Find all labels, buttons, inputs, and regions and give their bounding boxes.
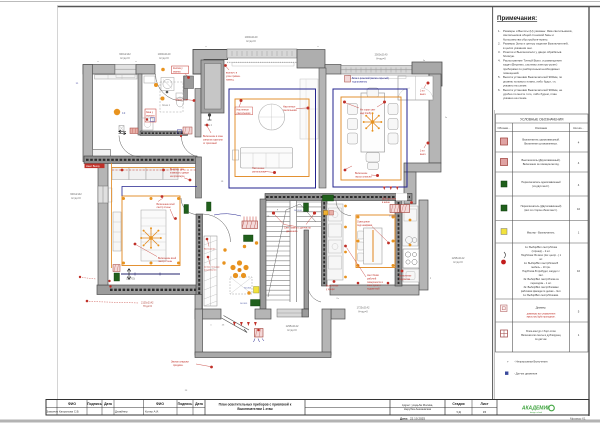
svg-text:Лист: Лист (480, 402, 488, 406)
svg-text:1.: 1. (498, 29, 501, 33)
svg-text:Выключатель (Двухклавишный).: Выключатель (Двухклавишный). (522, 158, 561, 162)
svg-text:Зона 1: Зона 1 (162, 103, 171, 107)
svg-text:1з: 1з (445, 117, 447, 119)
svg-text:Подпись: Подпись (178, 402, 193, 406)
svg-text:№1305: №1305 (240, 302, 248, 305)
svg-text:1295х2142: 1295х2142 (452, 256, 465, 260)
svg-text:под кроватью: под кроватью (352, 80, 367, 83)
svg-text:Мрамор К1: Мрамор К1 (570, 417, 586, 421)
svg-text:Мастер - Выключатель.: Мастер - Выключатель. (527, 231, 556, 235)
svg-text:Капралова С.В.: Капралова С.В. (59, 410, 79, 414)
svg-text:Дата: Дата (195, 402, 203, 406)
svg-text:рабочими фасада по делам – 3шт: рабочими фасада по делам – 3шт. (521, 290, 562, 293)
svg-text:(из двух мест).: (из двух мест). (532, 184, 550, 188)
svg-text:Накл Внизу: Накл Внизу (86, 164, 100, 168)
svg-text:подсветкой: подсветкой (367, 288, 380, 291)
svg-text:придомн.: придомн. (173, 364, 184, 367)
svg-text:движению: движению (286, 230, 298, 233)
svg-text:шт.: шт. (539, 258, 543, 261)
svg-text:от прихожей: от прихожей (203, 142, 217, 145)
svg-text:У.Д: У.Д (456, 410, 460, 414)
svg-text:люстр стены: люстр стены (158, 260, 172, 263)
svg-text:Н=до=0: Н=до=0 (376, 57, 386, 61)
svg-text:Переключатель одноклавишный: Переключатель одноклавишный (521, 180, 561, 184)
svg-text:яркостью light проходные.: яркостью light проходные. (527, 316, 556, 319)
svg-text:выключател: выключател (204, 270, 217, 272)
svg-text:УСЛОВНЫЕ ОБОЗНАЧЕНИЯ: УСЛОВНЫЕ ОБОЗНАЧЕНИЯ (520, 117, 564, 121)
svg-text:Н=до=0: Н=до=0 (246, 39, 256, 43)
svg-text:Включение: Включение (204, 249, 216, 251)
svg-text:Дата:: Дата: (400, 417, 408, 421)
svg-text:2500х2140: 2500х2140 (375, 53, 388, 57)
svg-text:Внизу 2 кл: Внизу 2 кл (176, 99, 188, 102)
svg-text:Выключателям 1 этаж: Выключателям 1 этаж (237, 407, 273, 411)
svg-text:1295х2142: 1295х2142 (286, 324, 299, 328)
svg-text:Копер А.И.: Копер А.И. (145, 410, 159, 414)
svg-text:2з: 2з (336, 298, 338, 300)
svg-text:design school: design school (530, 412, 543, 414)
svg-text:Н=до=0: Н=до=0 (71, 196, 81, 200)
svg-text:Выключатель одноклавишный.: Выключатель одноклавишный. (522, 138, 560, 142)
svg-text:22.10.2025: 22.10.2025 (410, 417, 425, 421)
svg-text:13: 13 (122, 111, 126, 115)
svg-text:Стадия: Стадия (452, 402, 464, 406)
svg-text:Включение установленных.: Включение установленных. (524, 142, 557, 146)
svg-text:включ. без звук: включ. без звук (204, 267, 220, 269)
svg-text:Н=до=0: Н=до=0 (287, 328, 297, 332)
svg-text:1я: Выбор/Вкл люстр/блоками.: 1я: Выбор/Вкл люстр/блоками. (523, 294, 559, 297)
svg-text:Зона у: Зона у (146, 112, 154, 114)
svg-text:АКАДЕМИК: АКАДЕМИК (521, 406, 551, 412)
svg-text:под шкафами: под шкафами (357, 224, 373, 227)
svg-text:+: + (507, 360, 509, 364)
svg-text:3я: Выбор/Вкл люстр/блока за: 3я: Выбор/Вкл люстр/блока за (523, 278, 559, 281)
svg-text:У3 У4: У3 У4 (389, 216, 396, 218)
svg-text:Н=до=0: Н=до=0 (120, 56, 130, 60)
svg-text:4.: 4. (498, 58, 501, 62)
svg-text:подсветки: подсветки (399, 278, 411, 281)
svg-text:Кол-во...: Кол-во... (573, 126, 584, 130)
svg-text:10: 10 (577, 207, 581, 211)
svg-text:Диммер.: Диммер. (536, 306, 547, 310)
svg-text:Дата: Дата (104, 402, 112, 406)
svg-text:Н=до=0: Н=до=0 (453, 260, 463, 264)
svg-text:Блок-контур с борт-слоя: Блок-контур с борт-слоя (526, 329, 556, 333)
svg-text:1000х2140: 1000х2140 (245, 35, 258, 39)
svg-text:Н=до=0: Н=до=0 (358, 310, 368, 314)
svg-text:зеркала: зеркала (146, 115, 155, 117)
svg-text:мебель – 10 грн.: мебель – 10 грн. (531, 266, 550, 269)
svg-text:6.: 6. (498, 88, 501, 92)
svg-text:1я: Выбор/Вкл люстр/блока В: 1я: Выбор/Вкл люстр/блока В (524, 262, 559, 265)
svg-text:№13.06: №13.06 (294, 209, 303, 212)
svg-text:ФИО: ФИО (156, 402, 164, 406)
svg-text:(торшер) – 2 шт.: (торшер) – 2 шт. (532, 250, 551, 253)
svg-text:выкл.: выкл. (420, 93, 426, 96)
svg-text:по датчик.: по датчик. (535, 338, 548, 341)
svg-text:Нерубка Анжиевская: Нерубка Анжиевская (404, 407, 432, 411)
svg-text:Примечания:: Примечания: (497, 15, 537, 22)
svg-text:светильники: светильники (237, 112, 251, 115)
svg-text:План осветительных приборов с: План осветительных приборов с привязкой … (219, 403, 292, 407)
svg-text:Дизайнер: Дизайнер (115, 410, 128, 414)
svg-text:1я: Выбор/Вкл люстр/блока: 1я: Выбор/Вкл люстр/блока (525, 246, 558, 249)
svg-text:ФИО: ФИО (68, 402, 76, 406)
svg-text:Подпись: Подпись (87, 402, 102, 406)
svg-text:3.: 3. (498, 50, 501, 54)
svg-text:- Непрерывная Включения: - Непрерывная Включения (514, 360, 548, 364)
svg-text:Под/блока В прибудет, закудет: Под/блока В прибудет, закудет с (522, 270, 560, 273)
svg-text:900х2142: 900х2142 (70, 192, 82, 196)
svg-text:в нише: в нише (382, 201, 391, 204)
svg-text:Н=до=0: Н=до=0 (143, 305, 153, 308)
svg-text:Включение за локацию метод.: Включение за локацию метод. (523, 162, 560, 166)
svg-text:переходом – 1 шт.: переходом – 1 шт. (530, 282, 551, 285)
svg-text:№1306: №1306 (244, 287, 252, 290)
svg-text:люстр спальни: люстр спальни (355, 175, 372, 178)
svg-text:указано на схеме.: указано на схеме. (503, 96, 527, 100)
svg-text:15: 15 (483, 410, 487, 414)
svg-text:выкл.: выкл. (420, 153, 426, 156)
svg-text:(25х700): (25х700) (126, 279, 135, 281)
svg-text:900х2142: 900х2142 (119, 52, 131, 56)
svg-text:Переключатель (Двухклавишный): Переключатель (Двухклавишный) (521, 204, 562, 208)
svg-text:светильники: светильники (283, 109, 297, 112)
svg-text:на прихожую: на прихожую (170, 175, 185, 178)
svg-text:помещ.: помещ. (226, 78, 235, 81)
svg-text:Включатели ленты в дублирующ: Включатели ленты в дублирующ (521, 333, 561, 337)
svg-text:1725х2142: 1725х2142 (357, 306, 370, 310)
svg-text:2125х2142: 2125х2142 (141, 302, 154, 305)
svg-text:звонка: звонка (173, 70, 181, 73)
svg-text:Под/блока: Во всех (1м: центр: Под/блока: Во всех (1м: центр...) 1 (521, 254, 562, 257)
svg-text:люстр стены: люстр стены (157, 206, 171, 209)
svg-text:2.: 2. (498, 42, 501, 46)
svg-text:у двери: у двери (326, 288, 335, 291)
svg-text:над briefly: над briefly (360, 112, 372, 115)
svg-text:5.: 5. (498, 75, 501, 79)
svg-text:- Датчик движения: - Датчик движения (514, 372, 538, 376)
svg-text:1шт.: 1шт. (539, 274, 544, 277)
svg-text:1з: 1з (423, 60, 425, 62)
svg-text:3я: Выбор/Вкл люстр/блоками: 3я: Выбор/Вкл люстр/блоками (523, 286, 559, 289)
svg-text:Описание: Описание (535, 126, 548, 130)
svg-text:10: 10 (577, 269, 581, 273)
svg-text:Заказчик: Заказчик (47, 410, 59, 414)
svg-text:светильники: светильники (252, 170, 266, 173)
svg-text:(вкл со сторон обеих мест).: (вкл со сторон обеих мест). (524, 208, 557, 212)
svg-text:1000х2140: 1000х2140 (158, 52, 171, 56)
svg-text:Обознач...: Обознач... (498, 126, 511, 130)
svg-text:Н=до=0: Н=до=0 (159, 56, 169, 60)
